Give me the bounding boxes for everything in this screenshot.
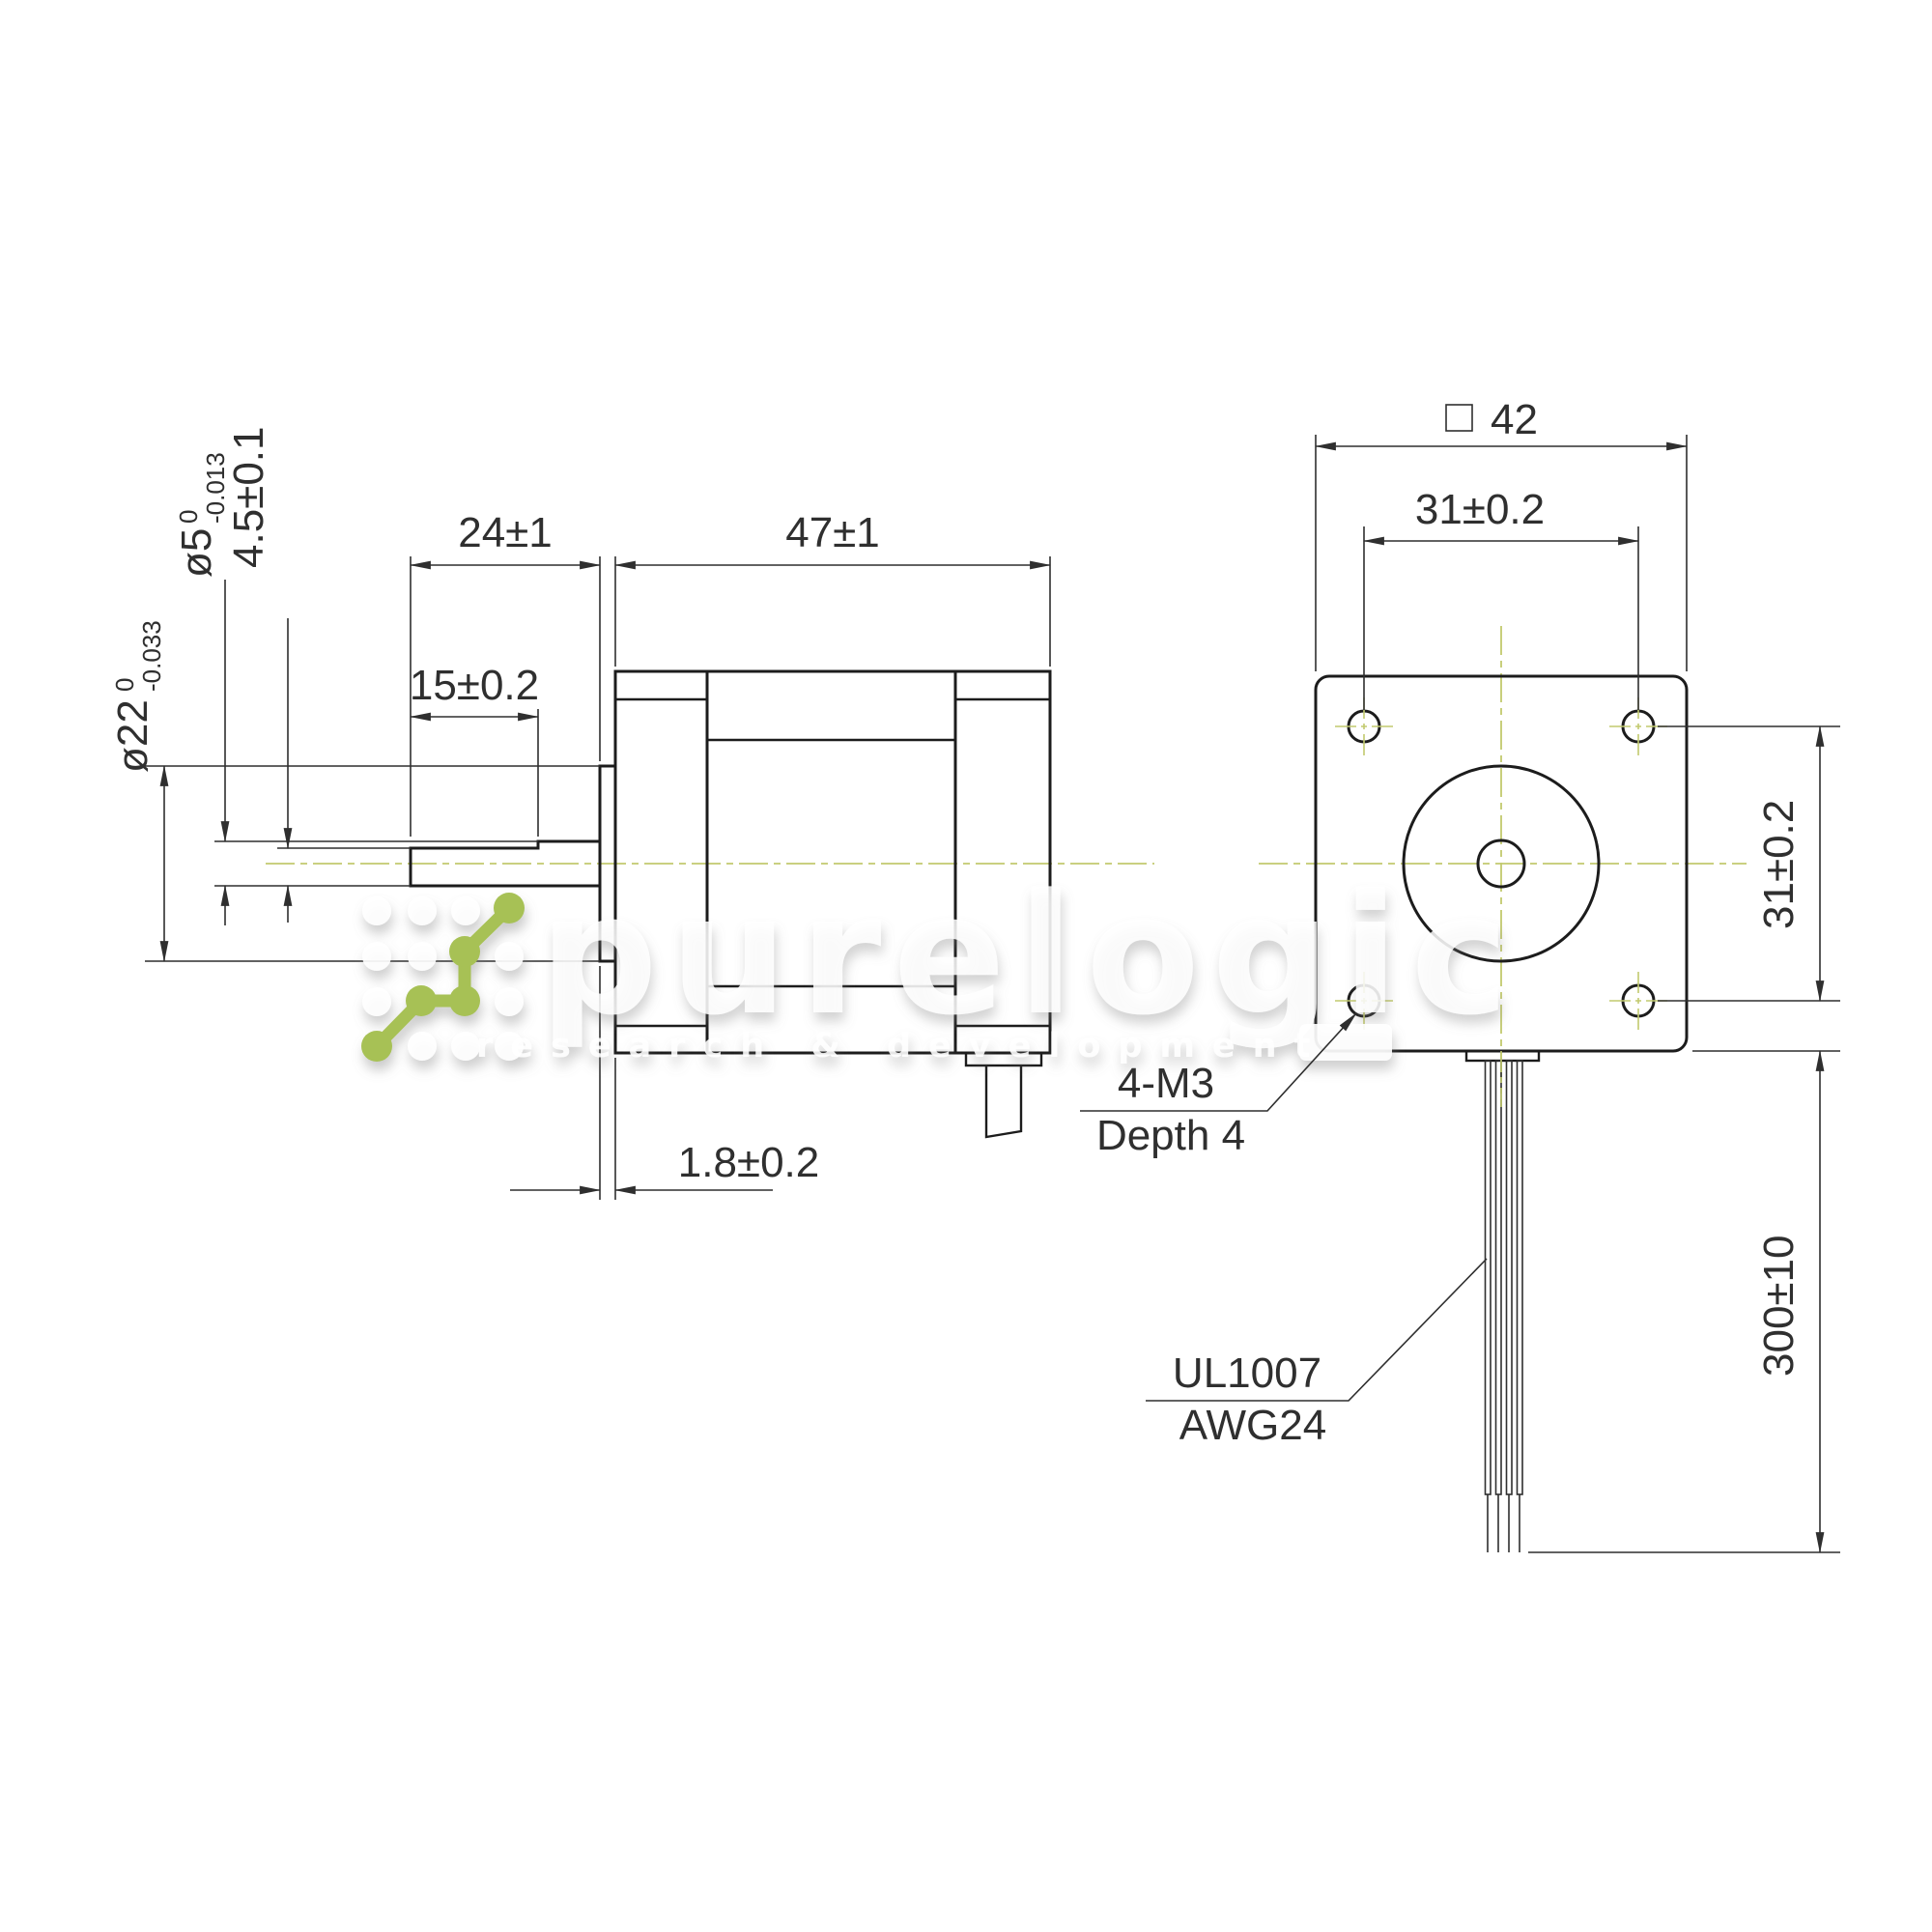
wire-label-line2: AWG24 bbox=[1179, 1402, 1326, 1449]
svg-text:ø5: ø5 bbox=[173, 528, 220, 578]
svg-text:0: 0 bbox=[174, 510, 203, 524]
technical-drawing: 24±1 47±1 15±0.2 1.8±0.2 ø22 0 -0.033 ø5… bbox=[0, 0, 1932, 1932]
svg-text:-0.033: -0.033 bbox=[137, 620, 166, 692]
svg-text:300±10: 300±10 bbox=[1755, 1235, 1803, 1377]
wire-label-line1: UL1007 bbox=[1173, 1350, 1321, 1397]
svg-text:4.5±0.1: 4.5±0.1 bbox=[225, 427, 272, 568]
svg-text:31±0.2: 31±0.2 bbox=[1755, 800, 1803, 929]
dim-hole-spacing-h: 31±0.2 bbox=[1415, 486, 1545, 533]
front-wire-leads bbox=[1486, 1061, 1523, 1552]
dim-face-width: 42 bbox=[1491, 396, 1538, 443]
dim-wire-length: 300±10 bbox=[1755, 1235, 1803, 1377]
mounting-holes-label-line1: 4-M3 bbox=[1118, 1060, 1214, 1107]
dim-boss-diameter: ø22 0 -0.033 bbox=[109, 620, 166, 773]
dim-boss-height: 1.8±0.2 bbox=[678, 1139, 819, 1186]
callouts: 4-M3 Depth 4 UL1007 AWG24 bbox=[1080, 1013, 1487, 1449]
dim-flat-length: 15±0.2 bbox=[410, 662, 539, 709]
technical-drawing-page: 24±1 47±1 15±0.2 1.8±0.2 ø22 0 -0.033 ø5… bbox=[0, 0, 1932, 1932]
dim-flat-depth: 4.5±0.1 bbox=[225, 427, 272, 568]
dim-shaft-diameter: ø5 0 -0.013 bbox=[173, 452, 230, 578]
svg-text:ø22: ø22 bbox=[109, 699, 156, 773]
watermark-end-block bbox=[1299, 1024, 1392, 1061]
square-symbol bbox=[1446, 405, 1472, 431]
dim-hole-spacing-v: 31±0.2 bbox=[1755, 800, 1803, 929]
side-wire-lead bbox=[986, 1065, 1021, 1137]
svg-text:0: 0 bbox=[110, 678, 139, 692]
watermark-brand: purelogic bbox=[539, 858, 1520, 1052]
mounting-holes-label-line2: Depth 4 bbox=[1096, 1112, 1245, 1159]
dim-shaft-extension: 24±1 bbox=[458, 509, 553, 556]
dim-body-length: 47±1 bbox=[785, 509, 880, 556]
